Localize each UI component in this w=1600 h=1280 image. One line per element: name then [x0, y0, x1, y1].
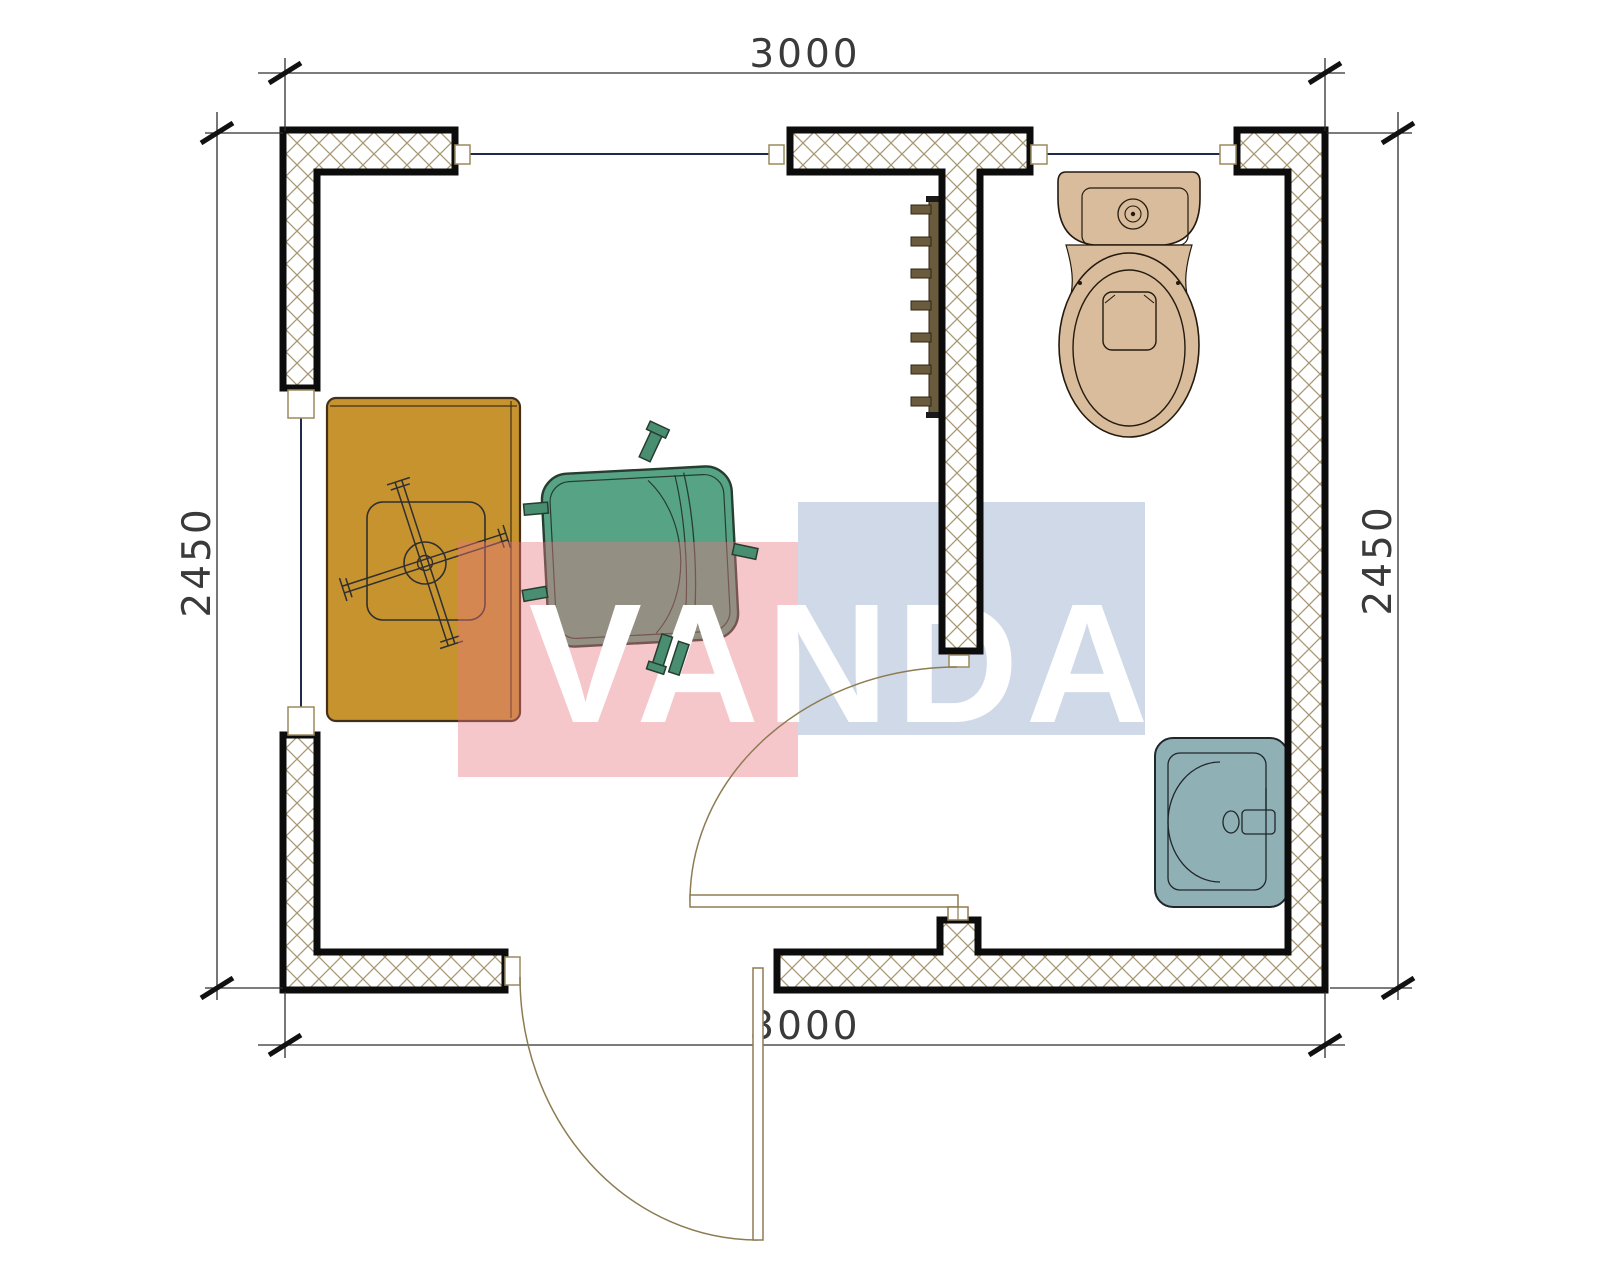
sink-body	[1155, 738, 1288, 907]
toilet-bolt-right	[1176, 281, 1180, 285]
bathroom-door-leaf	[690, 895, 958, 907]
entrance-door-leaf	[753, 968, 763, 1240]
dimension-top: 3000	[258, 32, 1345, 131]
toilet-tank	[1058, 172, 1200, 245]
dimension-left: 2450	[175, 112, 283, 1000]
dimension-top-label: 3000	[749, 32, 860, 77]
watermark-text: VANDA	[529, 569, 1156, 759]
watermark: VANDA	[458, 502, 1155, 777]
wall-top-left	[283, 130, 455, 388]
floor-plan-canvas: VANDA	[0, 0, 1600, 1280]
toilet	[1058, 172, 1200, 437]
toilet-bolt-left	[1078, 281, 1082, 285]
radiator-fins	[911, 205, 931, 406]
window-top-right	[1031, 145, 1236, 164]
window-left	[288, 390, 314, 735]
dimension-right-label: 2450	[1356, 504, 1401, 615]
sink	[1155, 738, 1288, 907]
toilet-bowl	[1059, 253, 1199, 437]
floor-plan-drawing: VANDA	[0, 0, 1600, 1280]
entrance-door	[505, 957, 763, 1240]
dimension-left-label: 2450	[175, 506, 220, 617]
window-top-left	[455, 145, 784, 164]
dimension-bottom-label: 3000	[749, 1004, 860, 1049]
toilet-flush-button-dot	[1131, 212, 1135, 216]
dimension-right: 2450	[1327, 112, 1414, 1000]
dimension-bottom: 3000	[258, 992, 1345, 1058]
